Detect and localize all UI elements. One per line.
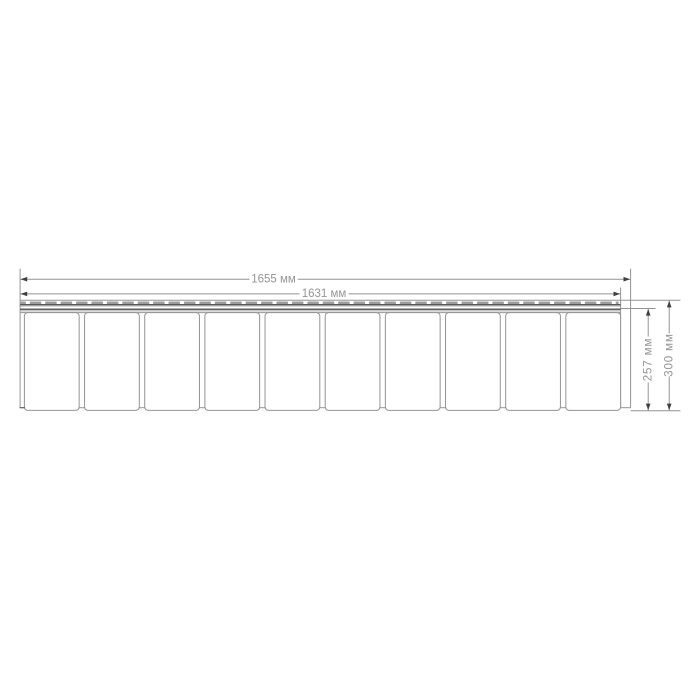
- svg-text:257 мм: 257 мм: [643, 338, 655, 382]
- svg-text:1631 мм: 1631 мм: [302, 288, 347, 300]
- svg-text:300 мм: 300 мм: [664, 333, 676, 377]
- svg-text:1655 мм: 1655 мм: [251, 273, 296, 285]
